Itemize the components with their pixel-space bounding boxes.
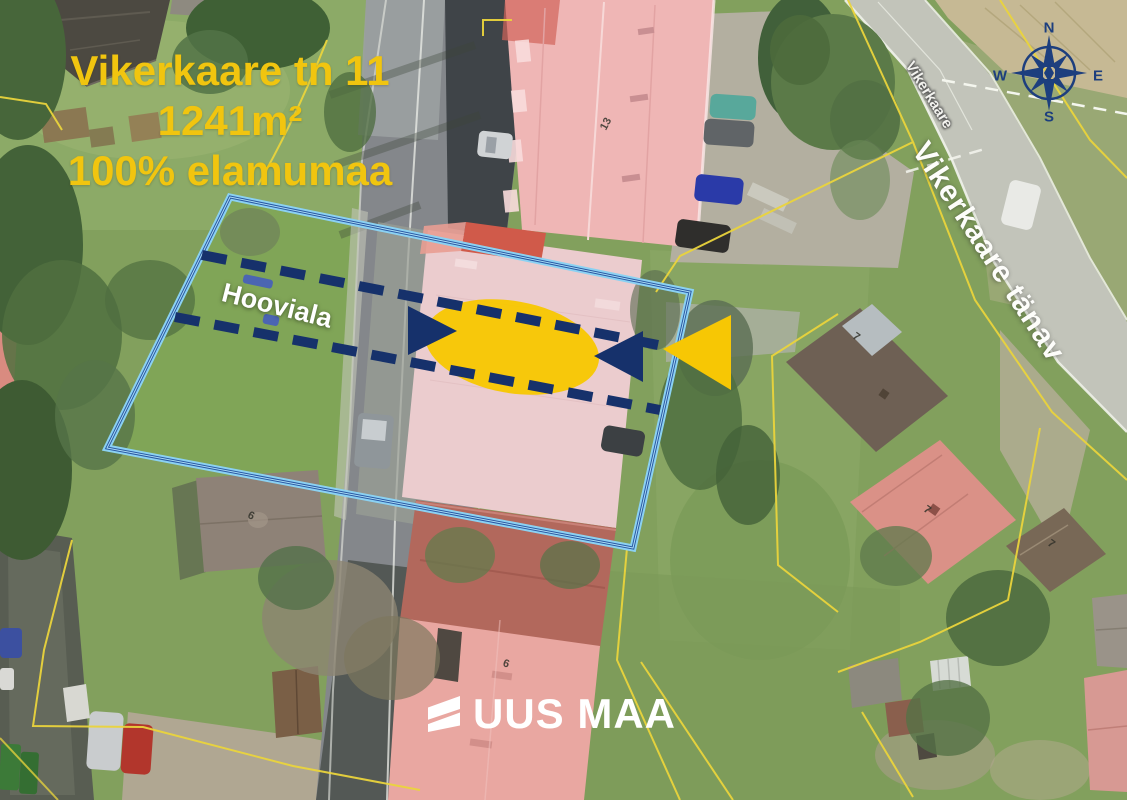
uusmaa-flag-icon xyxy=(428,696,460,732)
listing-area: 1241m² xyxy=(30,96,430,146)
listing-land-use: 100% elamumaa xyxy=(30,146,430,196)
listing-address: Vikerkaare tn 11 xyxy=(30,46,430,96)
uusmaa-logo: UUS MAA xyxy=(428,690,676,738)
listing-title: Vikerkaare tn 11 1241m² 100% elamumaa xyxy=(30,46,430,196)
compass-south-label: S xyxy=(1044,109,1054,126)
aerial-map: Vikerkaare tn 11 1241m² 100% elamumaa Ho… xyxy=(0,0,1127,800)
compass-east-label: E xyxy=(1093,68,1103,85)
compass-north-label: N xyxy=(1044,20,1055,37)
compass-west-label: W xyxy=(993,68,1007,85)
uusmaa-logo-text: UUS MAA xyxy=(473,690,676,738)
